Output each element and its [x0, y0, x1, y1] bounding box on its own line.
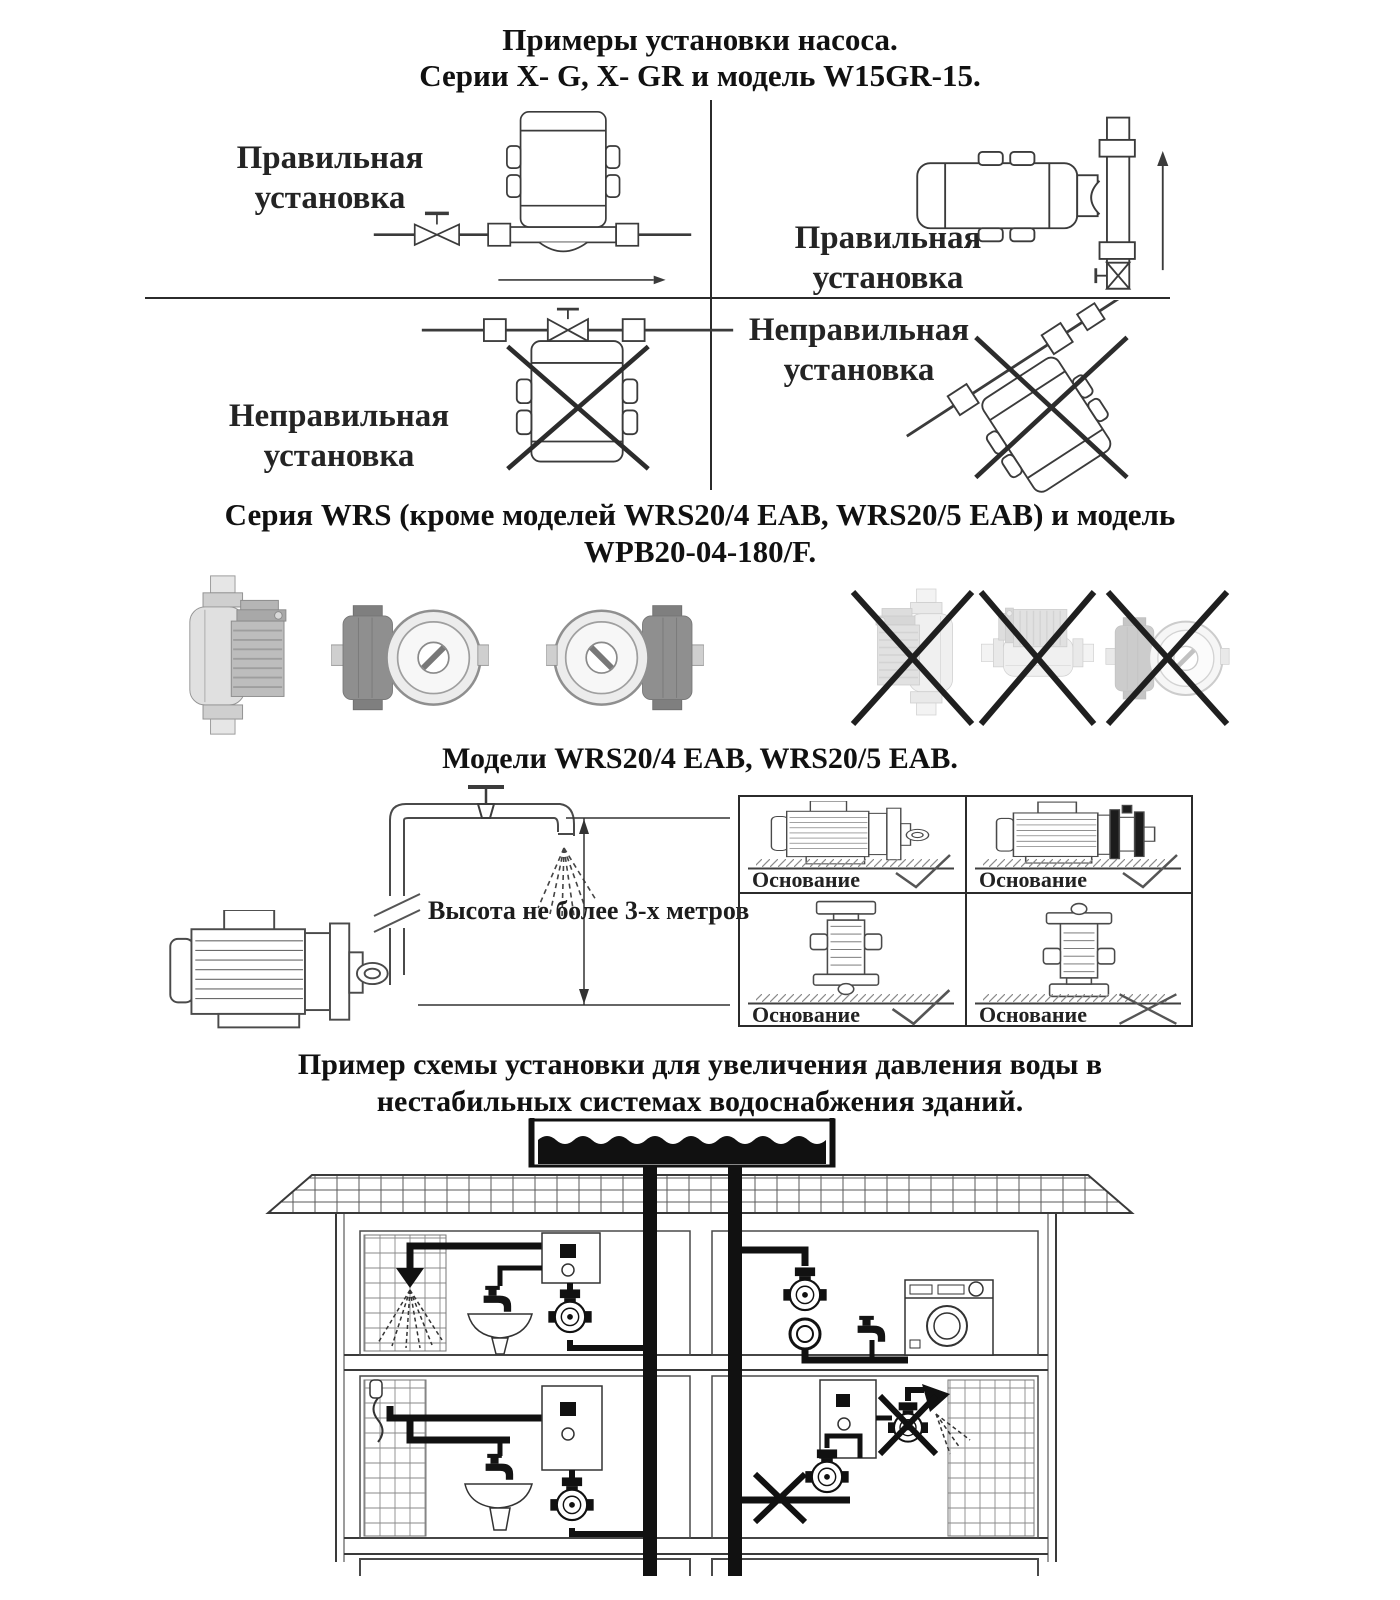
base-panel-3: Основание	[740, 894, 965, 1029]
max-height-note: Высота не более 3-х метров	[428, 896, 750, 926]
correct-horizontal-pipe-diagram	[370, 105, 695, 297]
base-panel-1: Основание	[740, 797, 965, 892]
page-title-line2: Серии X- G, X- GR и модель W15GR-15.	[0, 58, 1400, 94]
incorrect-hanging-pump-diagram	[420, 302, 735, 486]
base-label: Основание	[979, 1002, 1087, 1028]
scheme-title-line1: Пример схемы установки для увеличения да…	[0, 1046, 1400, 1083]
wrs-forbidden-orientation-3	[1100, 582, 1235, 732]
base-mounting-grid: Основание Основание Основание	[738, 795, 1193, 1027]
check-mark-icon	[1119, 853, 1183, 891]
base-label: Основание	[752, 1002, 860, 1028]
scheme-title-line2: нестабильных системах водоснабжения здан…	[0, 1083, 1400, 1120]
cross-mark-icon	[1115, 988, 1183, 1028]
base-label: Основание	[752, 867, 860, 893]
page-title-line1: Примеры установки насоса.	[0, 22, 1400, 58]
pump-upside-down-icon	[1035, 902, 1123, 998]
base-panel-2: Основание	[967, 797, 1193, 892]
xg-installation-grid: Правильная установка Правильная установк…	[145, 100, 1170, 490]
correct-vertical-pipe-diagram	[900, 112, 1180, 298]
check-mark-icon	[892, 853, 956, 891]
wrs-title-line2: WPB20-04-180/F.	[0, 533, 1400, 570]
manual-page: Примеры установки насоса. Серии X- G, X-…	[0, 0, 1400, 1600]
wrs-section-title: Серия WRS (кроме моделей WRS20/4 EAB, WR…	[0, 496, 1400, 570]
base-panel-4: Основание	[967, 894, 1193, 1029]
base-label: Основание	[979, 867, 1087, 893]
wrs-allowed-orientation-side	[155, 574, 300, 736]
building-scheme-diagram	[260, 1118, 1140, 1588]
scheme-section-title: Пример схемы установки для увеличения да…	[0, 1046, 1400, 1120]
wrs-forbidden-orientation-2	[975, 582, 1100, 732]
eab-section-title: Модели WRS20/4 EAB, WRS20/5 EAB.	[0, 742, 1400, 776]
page-title: Примеры установки насоса. Серии X- G, X-…	[0, 22, 1400, 94]
wrs-title-line1: Серия WRS (кроме моделей WRS20/4 EAB, WR…	[0, 496, 1400, 533]
incorrect-tilted-pump-diagram	[893, 300, 1193, 498]
pump-vertical-icon	[802, 900, 890, 996]
wrs-allowed-orientation-face-right	[535, 592, 715, 720]
wrs-forbidden-orientation-1	[845, 582, 980, 732]
check-mark-icon	[888, 988, 956, 1028]
wrs-allowed-orientation-face-left	[320, 592, 500, 720]
